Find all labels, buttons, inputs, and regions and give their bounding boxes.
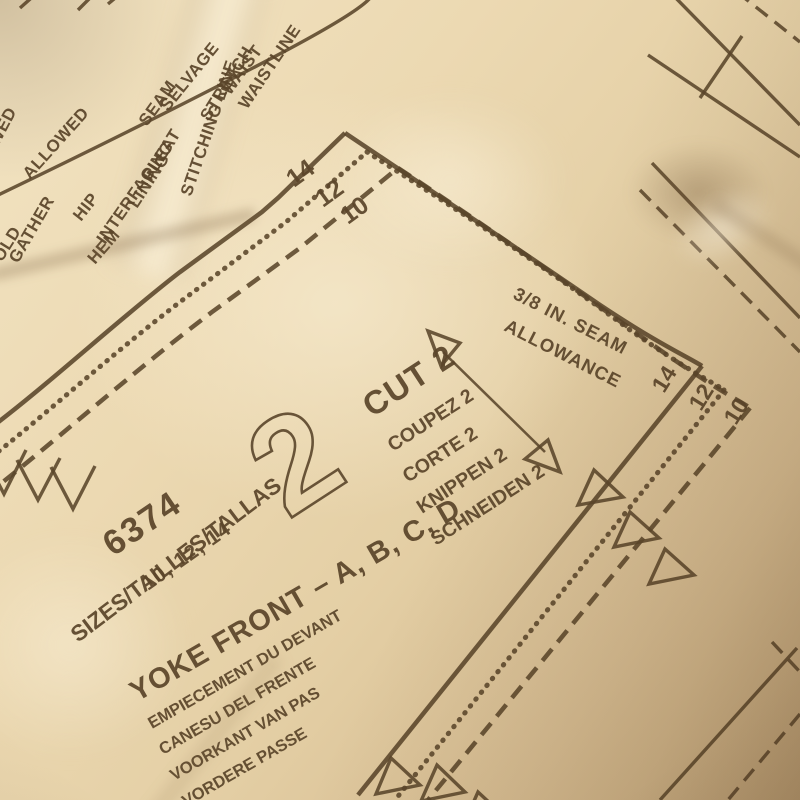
seam-allowance-note: 3/8 IN. SEAM ALLOWANCE: [501, 283, 631, 392]
notches-front-edge: [0, 450, 95, 509]
size-10-cutline: [0, 168, 750, 800]
legend-terms: ALLOWED FOLD GATHER ALLOWED HEM HIP INTE…: [0, 21, 305, 274]
legend-term: HIP: [69, 189, 102, 224]
legend-term: ALLOWED: [19, 103, 93, 182]
pattern-artwork: ALLOWED FOLD GATHER ALLOWED HEM HIP INTE…: [0, 0, 800, 800]
adjacent-piece-lines-bottom-right: [660, 642, 800, 800]
adjacent-piece-lines-top-right: [640, 0, 800, 352]
legend-term: ALLOWED: [0, 104, 21, 192]
sewing-pattern-photo: ALLOWED FOLD GATHER ALLOWED HEM HIP INTE…: [0, 0, 800, 800]
shoulder-size-labels: 14 12 10: [281, 154, 374, 230]
size-label-14: 14: [646, 361, 682, 397]
piece-name-block: YOKE FRONT – A, B, C, D EMPIECEMENT DU D…: [125, 492, 467, 800]
size-label-10: 10: [718, 393, 754, 428]
